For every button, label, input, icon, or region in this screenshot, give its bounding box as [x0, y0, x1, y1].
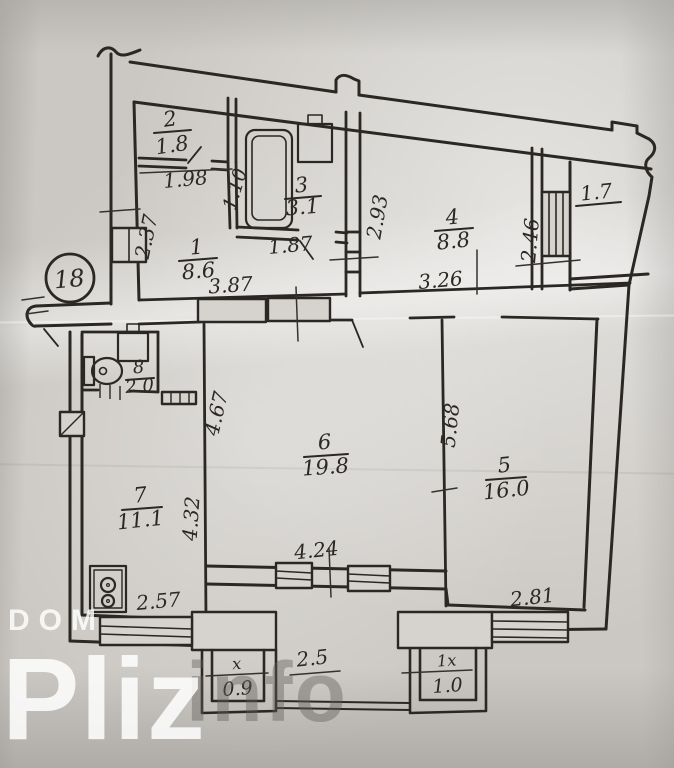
room-5-number: 5 — [496, 452, 512, 477]
wash-sink-wc — [118, 324, 148, 361]
dim-1-98: 1.98 — [162, 165, 208, 193]
balcony-right-area: 1.0 — [432, 674, 464, 698]
dim-2-37: 2.37 — [130, 212, 163, 262]
wash-sink-bathroom — [298, 115, 332, 162]
door-sill — [162, 392, 196, 404]
dim-2-46: 2.46 — [516, 217, 544, 265]
toilet — [84, 357, 122, 385]
floor-plan-drawing: 18 2 1.8 1.98 1 8.6 3.87 2.37 1.10 3 3.1… — [0, 0, 674, 768]
room-3-area: 3.1 — [285, 194, 320, 221]
wc-door-hatch — [100, 384, 120, 400]
balcony-width: 2.5 — [294, 644, 329, 671]
dim-4-32: 4.32 — [177, 495, 204, 542]
dim-1-87: 1.87 — [267, 231, 314, 259]
room-4-area: 8.8 — [435, 227, 471, 254]
dim-3-26: 3.26 — [417, 266, 464, 294]
room6-window — [348, 566, 390, 591]
scanned-floor-plan-photo: 18 2 1.8 1.98 1 8.6 3.87 2.37 1.10 3 3.1… — [0, 0, 674, 768]
outer-walls — [27, 48, 655, 646]
dim-2-81: 2.81 — [508, 583, 556, 612]
room-2-area: 1.8 — [154, 131, 190, 159]
stove — [90, 566, 126, 612]
room-5-area: 16.0 — [482, 476, 531, 505]
wall-slab-right — [398, 612, 492, 648]
wall-slab-left — [192, 612, 276, 650]
room-7-area: 11.1 — [116, 506, 165, 535]
balcony-left-area: 0.9 — [222, 677, 254, 701]
unit-badge-number: 18 — [53, 264, 86, 295]
room-8-area: 2.0 — [124, 375, 155, 398]
dim-2-93: 2.93 — [361, 193, 393, 242]
room-7-number: 7 — [132, 482, 148, 507]
balcony-door — [276, 563, 312, 588]
balcony-left-label: x — [231, 654, 241, 674]
room-4-number: 4 — [443, 204, 460, 229]
dim-3-87: 3.87 — [207, 271, 253, 298]
kitchen-window — [100, 617, 192, 645]
room-6-number: 6 — [317, 430, 332, 455]
room-1-number: 1 — [189, 234, 204, 259]
bathtub — [246, 130, 292, 228]
pantry-area: 1.7 — [579, 178, 613, 205]
room-2-number: 2 — [161, 106, 179, 132]
balcony-railing — [276, 701, 410, 710]
dim-2-57: 2.57 — [134, 587, 182, 615]
balcony-right-label: 1x — [436, 650, 456, 670]
dim-4-24: 4.24 — [292, 536, 340, 565]
dim-5-68: 5.68 — [436, 402, 465, 449]
room-6-area: 19.8 — [301, 453, 349, 480]
